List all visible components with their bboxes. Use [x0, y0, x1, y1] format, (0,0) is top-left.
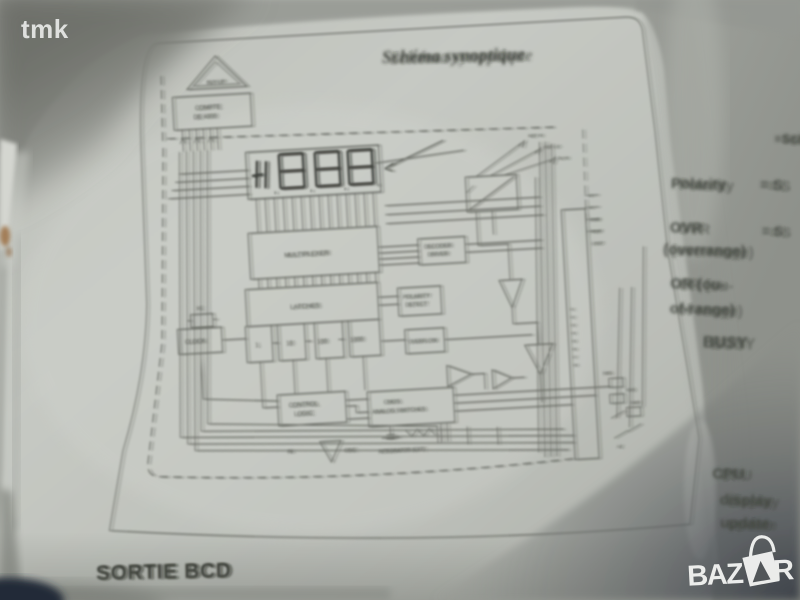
svg-text:IN: IN	[287, 449, 293, 455]
svg-text:OR (ou-: OR (ou-	[670, 275, 725, 293]
svg-text:OSC: OSC	[344, 448, 356, 455]
svg-text:Schéma synoptique: Schéma synoptique	[382, 44, 525, 67]
svg-text:update: update	[720, 515, 770, 533]
svg-text:SW1: SW1	[602, 370, 613, 376]
svg-text:DETECT: DETECT	[405, 301, 428, 308]
svg-text:Polarity: Polarity	[671, 175, 727, 193]
svg-text:V-: V-	[589, 205, 594, 210]
svg-text:R: R	[772, 554, 795, 587]
svg-text:BUSY: BUSY	[703, 334, 748, 352]
svg-text:BUY-UP: BUY-UP	[206, 79, 225, 86]
svg-text:= S: = S	[760, 177, 783, 195]
svg-text:CPU: CPU	[712, 465, 744, 483]
svg-text:= S: = S	[762, 223, 784, 240]
svg-text:of-range): of-range)	[670, 300, 735, 319]
svg-text:XC: XC	[196, 306, 204, 312]
svg-text:DRIVER: DRIVER	[427, 251, 448, 258]
svg-text:IN HI: IN HI	[558, 155, 569, 161]
svg-text:AZ: AZ	[616, 444, 622, 449]
svg-text:10: 10	[286, 341, 294, 347]
svg-text:100: 100	[317, 339, 328, 346]
svg-text:BAZ: BAZ	[686, 558, 743, 593]
svg-text:LOGIC: LOGIC	[294, 411, 314, 418]
svg-text:REF HI: REF HI	[528, 133, 543, 139]
svg-text:display: display	[720, 492, 773, 510]
svg-text:OVR: OVR	[670, 219, 703, 237]
svg-text:tmk: tmk	[21, 14, 69, 44]
svg-text:SW3: SW3	[630, 400, 641, 406]
svg-text:(overrange): (overrange)	[663, 241, 746, 260]
svg-text:CREF: CREF	[591, 241, 604, 247]
svg-text:≡Sch: ≡Sch	[774, 131, 800, 147]
svg-text:CLOCK: CLOCK	[185, 339, 206, 346]
svg-text:REF LO: REF LO	[544, 144, 561, 150]
svg-text:1000: 1000	[350, 337, 364, 344]
svg-text:CMOS: CMOS	[384, 399, 401, 406]
